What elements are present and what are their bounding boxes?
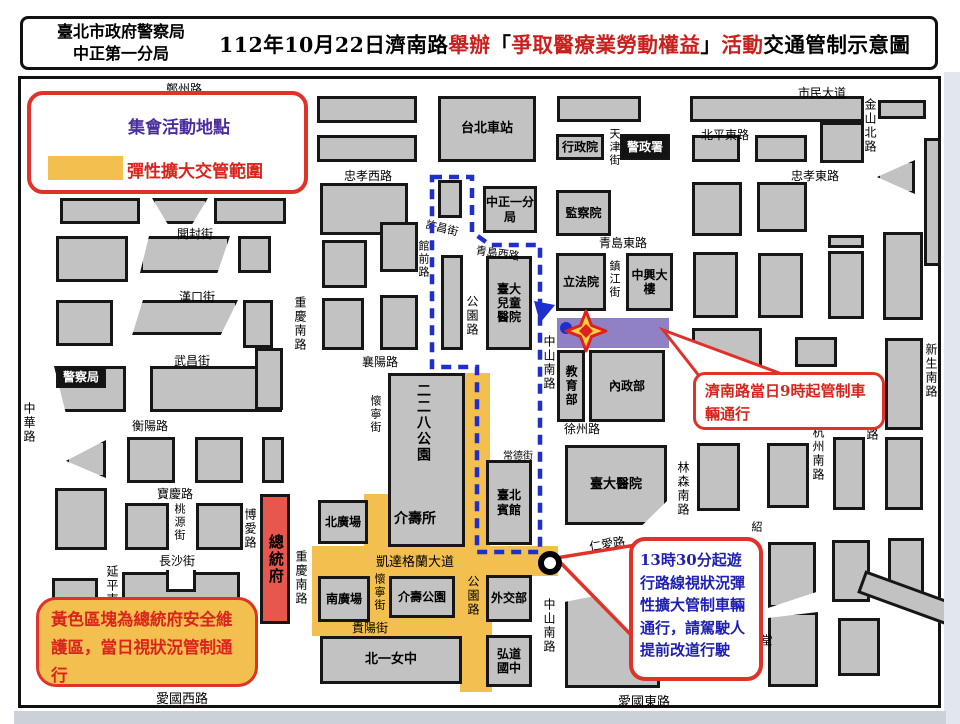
jinan-road-control-band: [557, 318, 669, 348]
jinan-control-callout: 濟南路當日9時起管制車輛通行: [693, 372, 885, 430]
city-block: [820, 122, 864, 163]
street-label: 忠孝西路: [344, 167, 392, 184]
building-block: 介壽公園: [389, 576, 455, 618]
street-label: 路: [864, 428, 881, 442]
city-block: [795, 337, 837, 367]
street-label: 重慶南路: [292, 296, 309, 352]
city-block: [317, 135, 417, 162]
building-block: 中正一分局: [483, 186, 537, 233]
street-label: 開封街: [177, 225, 213, 242]
city-block: [166, 570, 196, 592]
traffic-control-map-page: 臺北市政府警察局 中正第一分局 112年10月22日濟南路舉辦「爭取醫療業勞動權…: [0, 0, 960, 724]
city-block: [238, 236, 271, 273]
city-block: [877, 160, 915, 194]
legend-star-label: 集會活動地點: [128, 113, 230, 138]
building-block: 台北車站: [438, 96, 536, 162]
city-block: [767, 443, 809, 508]
city-block: [152, 198, 208, 224]
street-label: 漢口街: [179, 288, 215, 305]
city-block: [755, 135, 807, 162]
building-block: 北一女中: [320, 636, 462, 684]
city-block: [758, 253, 803, 318]
building-block: 立法院: [556, 253, 606, 311]
street-label: 公園路: [465, 575, 482, 617]
building-block: 行政院: [556, 134, 604, 160]
city-block: [833, 437, 865, 510]
page-edge-right: [944, 72, 960, 724]
building-block: 臺北賓館: [486, 460, 532, 545]
building-block: 北廣場: [318, 500, 368, 544]
street-label: 公園路: [464, 295, 481, 337]
street-label: 長沙街: [159, 552, 195, 569]
street-label: 懷寧街: [367, 395, 383, 434]
city-block: [693, 252, 738, 318]
street-label: 介壽所: [394, 508, 436, 528]
street-label: 許昌街: [424, 216, 460, 240]
street-label: 北平東路: [701, 126, 749, 143]
city-block: [768, 542, 816, 608]
city-block: [243, 300, 273, 348]
street-label: 貴陽街: [352, 619, 388, 636]
street-label: 重慶南路: [293, 550, 310, 606]
street-label: 博愛路: [242, 508, 259, 550]
street-label: 愛國西路: [156, 688, 208, 707]
legend-zone-label: 彈性擴大交管範圍: [127, 157, 263, 182]
city-block: [838, 618, 880, 676]
city-block: [56, 300, 113, 346]
city-block: [768, 612, 818, 687]
city-block: [828, 235, 864, 248]
city-block: [441, 255, 463, 350]
building-block: 臺大兒童醫院: [486, 256, 532, 350]
building-block: 臺大醫院: [565, 445, 667, 525]
city-block: [557, 96, 641, 122]
street-label: 天津街: [606, 128, 622, 167]
city-block: [885, 437, 923, 510]
street-label: 鎮江街: [606, 260, 622, 299]
city-block: [66, 440, 106, 478]
street-label: 忠孝東路: [791, 167, 839, 184]
street-label: 桃源街: [171, 503, 187, 542]
city-block: [322, 240, 367, 288]
city-block: [262, 437, 284, 483]
street-label: 凱達格蘭大道: [376, 551, 454, 570]
building-block: 中興大樓: [626, 253, 673, 311]
city-block: [127, 437, 175, 483]
president-zone-callout: 黃色區塊為總統府安全維護區，當日視狀況管制通行: [36, 597, 258, 687]
city-block: [438, 180, 462, 218]
building-block: 內政部: [589, 350, 665, 422]
building-block: 總統府: [260, 494, 290, 624]
city-block: [692, 328, 762, 368]
street-label: 寶慶路: [157, 485, 193, 502]
street-label: 愛國東路: [618, 691, 670, 710]
street-label: 杭州南路: [810, 426, 827, 482]
city-block: [828, 251, 864, 319]
city-block: [125, 503, 169, 550]
street-label: 新生南路: [923, 343, 940, 399]
legend-zone-swatch: [48, 156, 123, 180]
street-label: 二二八公園: [413, 383, 433, 463]
street-label: 市民大道: [798, 84, 846, 101]
building-block: 教育部: [557, 350, 585, 422]
city-block: [317, 96, 417, 123]
street-label: 青島東路: [599, 234, 647, 251]
city-block: [322, 298, 364, 350]
street-label: 中山南路: [541, 335, 558, 391]
city-block: [380, 222, 418, 272]
city-block: [55, 488, 107, 550]
city-block: [60, 198, 140, 224]
street-label: 常德街: [503, 447, 533, 462]
city-block: [56, 236, 128, 282]
city-block: [878, 100, 926, 119]
city-block: [885, 338, 923, 430]
city-block: [130, 300, 238, 335]
building-block: 警政署: [620, 134, 670, 160]
street-label: 武昌街: [174, 352, 210, 369]
street-label: 金山北路: [862, 98, 879, 154]
city-block: [214, 198, 286, 224]
city-block: [757, 182, 807, 232]
page-edge-bottom: [14, 711, 946, 724]
building-block: 外交部: [486, 575, 532, 622]
street-label: 林森南路: [675, 461, 692, 517]
city-block: [924, 138, 941, 266]
street-label: 仁愛路: [588, 532, 626, 554]
building-block: 監察院: [556, 190, 611, 236]
street-label: 襄陽路: [362, 353, 398, 370]
building-block: 弘道國中: [486, 635, 532, 687]
street-label: 青島西路: [475, 242, 521, 264]
street-label: 中華路: [21, 402, 38, 444]
street-label: 紹: [748, 521, 764, 534]
building-block: 南廣場: [318, 576, 370, 622]
street-label: 中山南路: [541, 598, 558, 654]
city-block: [196, 503, 243, 550]
street-label: 衡陽路: [132, 417, 168, 434]
building-block: 警察局: [56, 366, 106, 388]
street-label: 館前路: [415, 240, 431, 279]
flex-control-callout: 13時30分起遊行路線視狀況彈性擴大管制車輛通行，請駕駛人提前改道行駛: [629, 537, 763, 681]
city-block: [255, 348, 283, 410]
city-block: [692, 182, 742, 236]
city-block: [883, 232, 923, 320]
city-block: [195, 437, 243, 483]
city-block: [380, 295, 418, 350]
street-label: 懷寧街: [371, 573, 387, 612]
city-block: [697, 443, 740, 511]
street-label: 徐州路: [564, 420, 600, 437]
